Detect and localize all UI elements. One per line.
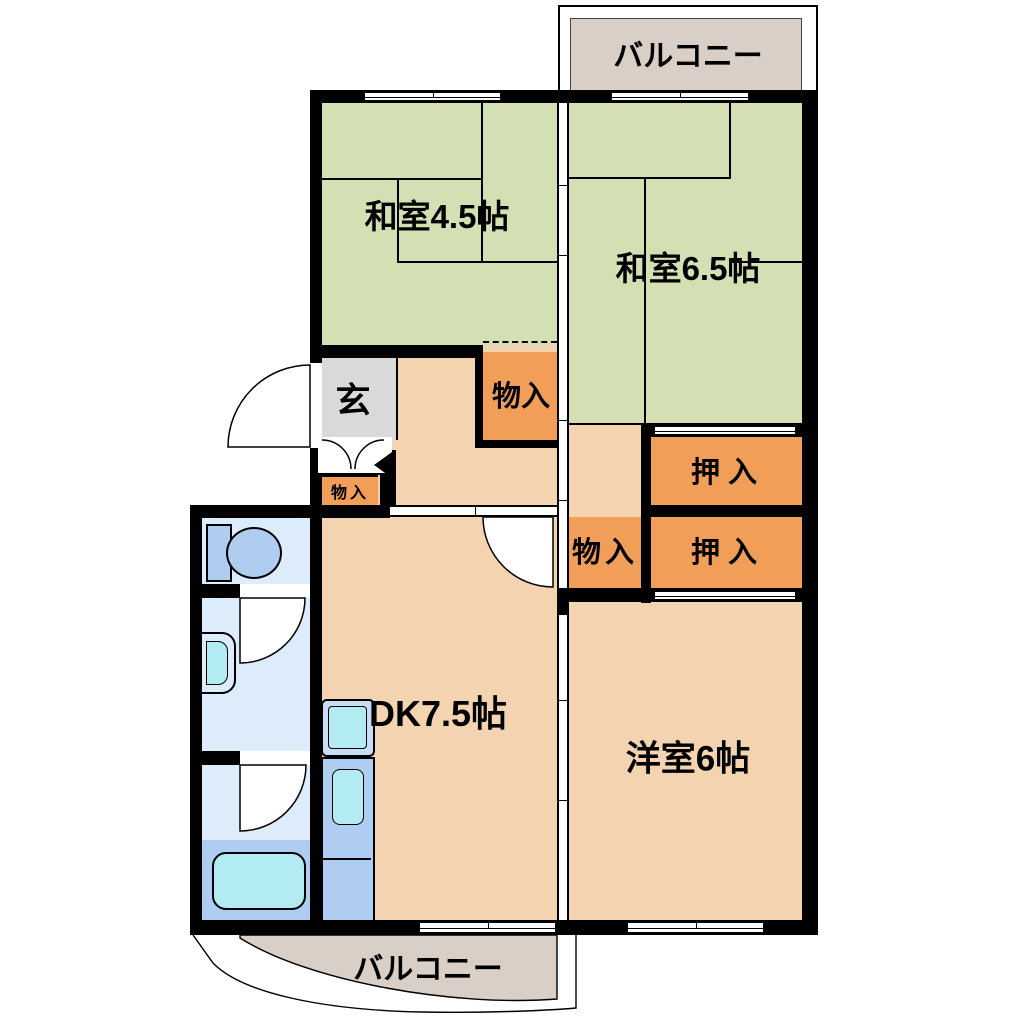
genkan-label: 玄 xyxy=(335,373,370,424)
western-room-label: 洋室6帖 xyxy=(626,731,750,782)
dk-label: DK7.5帖 xyxy=(369,685,507,737)
balcony-bottom-label: バルコニー xyxy=(353,944,502,988)
storage-mid-label: 物入 xyxy=(572,529,638,571)
entry-door-swing xyxy=(228,365,310,447)
closet-lower-label: 押入 xyxy=(691,529,765,571)
overlay-graphics xyxy=(0,0,1020,1020)
floor-plan: バルコニー 和室4.5帖 和室6.5帖 玄 物入 物入 押入 物入 押入 DK7… xyxy=(0,0,1020,1020)
closet-upper-label: 押入 xyxy=(691,449,765,491)
storage-hall-label: 物入 xyxy=(492,373,550,415)
washroom-door-swing xyxy=(240,598,305,663)
storage-genkan-label: 物入 xyxy=(331,479,369,503)
bathroom-door-swing xyxy=(240,765,306,831)
dk-door-swing xyxy=(483,517,553,587)
entrance-arrow-icon xyxy=(374,452,392,478)
washitsu-65-label: 和室6.5帖 xyxy=(616,242,761,290)
balcony-top-label: バルコニー xyxy=(613,31,762,75)
washitsu-45-label: 和室4.5帖 xyxy=(365,190,510,238)
genkan-bifold-left-leaf xyxy=(322,440,351,469)
